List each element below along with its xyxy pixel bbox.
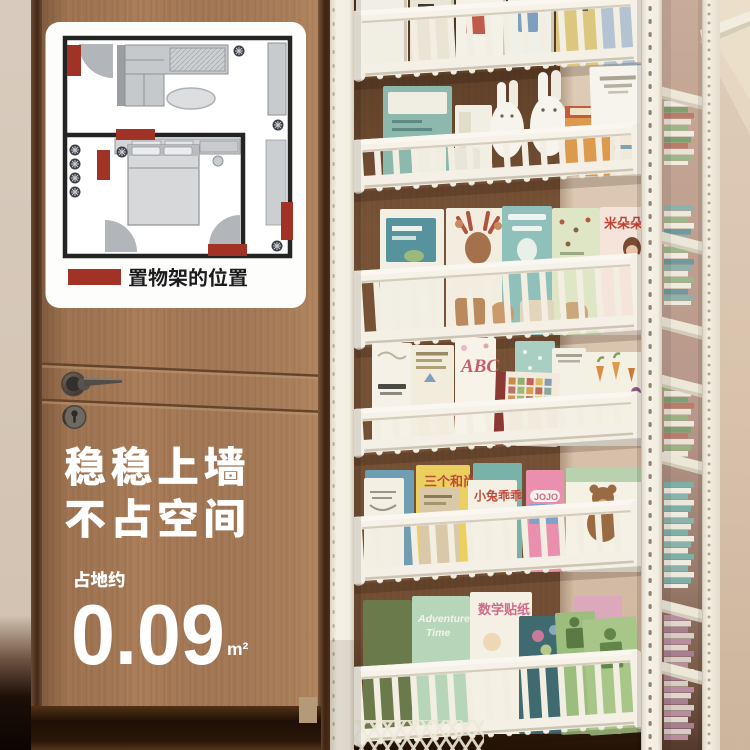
svg-text:数学贴纸: 数学贴纸 [478, 602, 530, 617]
svg-text:m²: m² [227, 639, 249, 659]
svg-text:0.09: 0.09 [71, 588, 225, 682]
svg-text:Adventure: Adventure [417, 613, 470, 625]
svg-text:ABC: ABC [460, 356, 499, 377]
svg-text:Time: Time [426, 627, 450, 639]
svg-text:小兔乖乖: 小兔乖乖 [474, 488, 522, 503]
svg-text:JOJO: JOJO [534, 492, 558, 502]
